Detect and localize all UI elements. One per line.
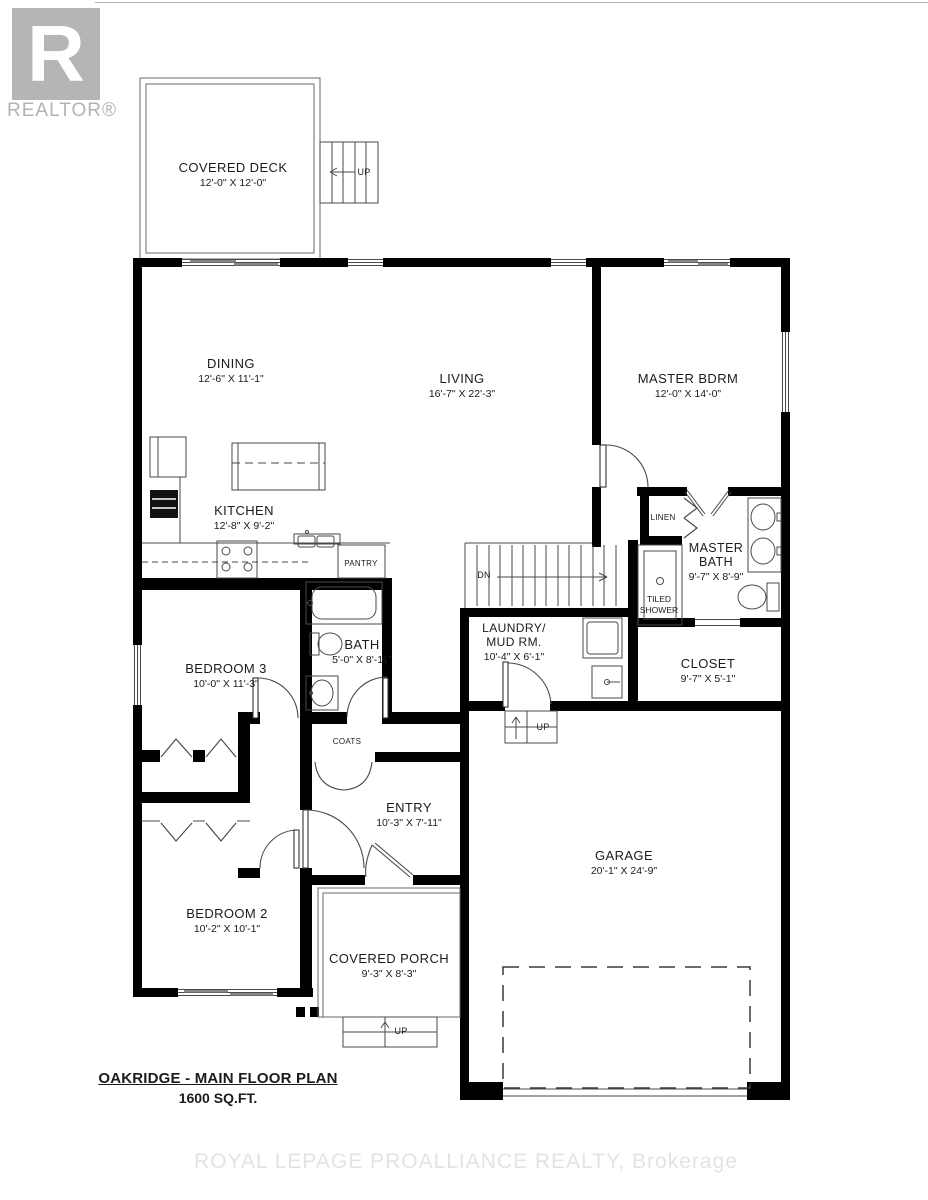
washer — [583, 618, 622, 658]
stairs-dn-label: DN — [477, 570, 491, 580]
room-label-garage: GARAGE 20'-1" X 24'-9" — [591, 848, 657, 877]
room-label-kitchen: KITCHEN 12'-8" X 9'-2" — [214, 503, 275, 532]
room-label-covered-deck: COVERED DECK 12'-0" X 12'-0" — [179, 160, 288, 189]
room-label-linen: LINEN — [650, 513, 675, 522]
room-label-pantry: PANTRY — [344, 559, 378, 568]
stove — [217, 541, 257, 578]
plan-square-footage: 1600 SQ.FT. — [98, 1090, 337, 1106]
plan-title: OAKRIDGE - MAIN FLOOR PLAN — [98, 1070, 337, 1087]
porch-steps — [343, 1017, 437, 1047]
room-label-covered-porch: COVERED PORCH 9'-3" X 8'-3" — [329, 951, 449, 980]
refrigerator — [150, 437, 186, 477]
garage-door-dashed-outline — [503, 967, 750, 1088]
door-swings — [253, 445, 648, 877]
room-label-coats: COATS — [333, 737, 361, 746]
room-label-master-bath: MASTER BATH 9'-7" X 8'-9" — [689, 541, 744, 583]
room-label-closet: CLOSET 9'-7" X 5'-1" — [681, 656, 736, 685]
room-label-bedroom3: BEDROOM 3 10'-0" X 11'-3" — [185, 661, 267, 690]
wall-oven — [150, 490, 178, 518]
toilet-master-bath — [738, 583, 779, 611]
garage-door — [503, 1089, 747, 1096]
kitchen-sink — [294, 531, 340, 548]
porch-steps-up-label: UP — [394, 1026, 407, 1036]
kitchen-island — [232, 443, 325, 490]
room-label-bath: BATH 5'-0" X 8'-11" — [332, 637, 392, 666]
brokerage-watermark: ROYAL LEPAGE PROALLIANCE REALTY, Brokera… — [194, 1150, 738, 1174]
closet-opening — [695, 620, 740, 626]
room-label-bedroom2: BEDROOM 2 10'-2" X 10'-1" — [186, 906, 268, 935]
plan-title-block: OAKRIDGE - MAIN FLOOR PLAN 1600 SQ.FT. — [98, 1070, 337, 1106]
deck-stairs-up-label: UP — [357, 167, 370, 177]
room-label-living: LIVING 16'-7" X 22'-3" — [429, 371, 495, 400]
room-label-laundry: LAUNDRY/ MUD RM. 10'-4" X 6'-1" — [482, 621, 546, 663]
garage-step-up-label: UP — [536, 722, 549, 732]
master-bath-vanity — [748, 498, 781, 572]
room-label-master-bdrm: MASTER BDRM 12'-0" X 14'-0" — [638, 371, 738, 400]
room-label-dining: DINING 12'-6" X 11'-1" — [198, 356, 264, 385]
room-label-entry: ENTRY 10'-3" X 7'-11" — [376, 800, 442, 829]
laundry-sink — [592, 666, 622, 698]
room-label-tiled-shower: TILED SHOWER — [640, 594, 678, 616]
floor-plan-page: R REALTOR® — [0, 0, 928, 1200]
floor-plan-drawing — [0, 0, 928, 1200]
